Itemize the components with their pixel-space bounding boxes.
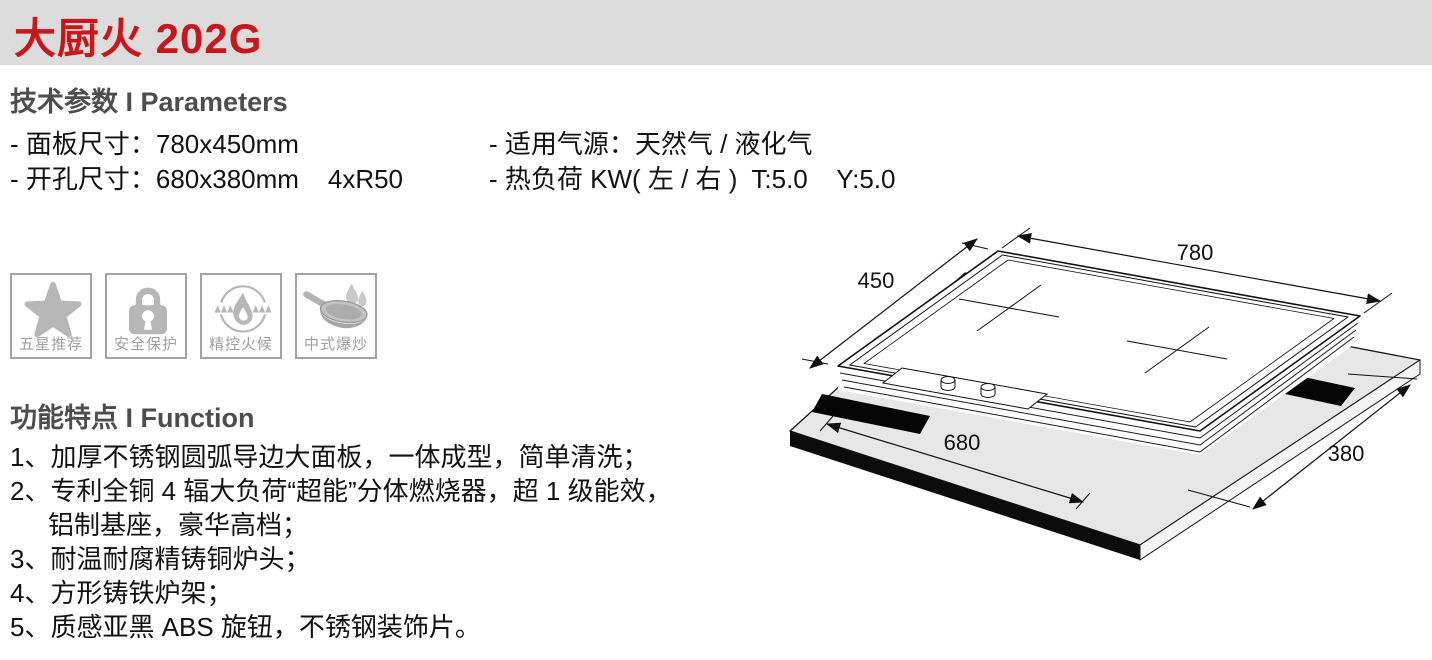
feature-five-star: 五星推荐 bbox=[10, 273, 92, 359]
function-item-1: 1、加厚不锈钢圆弧导边大面板，一体成型，简单清洗； bbox=[10, 440, 770, 474]
function-list: 1、加厚不锈钢圆弧导边大面板，一体成型，简单清洗； 2、专利全铜 4 辐大负荷“… bbox=[10, 440, 770, 644]
dim-label-380: 380 bbox=[1328, 441, 1365, 466]
feature-label: 精控火候 bbox=[202, 333, 280, 354]
function-item-2: 2、专利全铜 4 辐大负荷“超能”分体燃烧器，超 1 级能效， bbox=[10, 474, 770, 508]
star-icon bbox=[15, 277, 91, 339]
function-item-4: 4、方形铸铁炉架； bbox=[10, 576, 770, 610]
param-heat-load: - 热负荷 KW( 左 / 右 ) T:5.0 Y:5.0 bbox=[489, 159, 895, 196]
extension-line bbox=[802, 359, 828, 364]
parameters-heading: 技术参数 I Parameters bbox=[10, 80, 288, 119]
param-panel-size: - 面板尺寸：780x450mm bbox=[10, 124, 299, 161]
function-item-5: 5、质感亚黑 ABS 旋钮，不锈钢装饰片。 bbox=[10, 610, 770, 644]
lock-icon bbox=[110, 277, 186, 339]
function-item-3: 3、耐温耐腐精铸铜炉头； bbox=[10, 542, 770, 576]
function-item-2b: 铝制基座，豪华高档； bbox=[10, 508, 770, 542]
extension-line bbox=[1364, 293, 1392, 313]
param-gas-type: - 适用气源：天然气 / 液化气 bbox=[489, 124, 813, 161]
feature-flame-control: 精控火候 bbox=[200, 273, 282, 359]
param-cutout-size: - 开孔尺寸：680x380mm 4xR50 bbox=[10, 159, 403, 196]
feature-label: 中式爆炒 bbox=[297, 333, 375, 354]
function-heading: 功能特点 I Function bbox=[10, 396, 254, 435]
flame-control-icon bbox=[205, 277, 281, 339]
dim-label-780: 780 bbox=[1177, 240, 1214, 265]
dim-label-680: 680 bbox=[944, 430, 981, 455]
feature-wok: 中式爆炒 bbox=[295, 273, 377, 359]
feature-label: 安全保护 bbox=[107, 333, 185, 354]
dim-label-450: 450 bbox=[858, 268, 895, 293]
page-title: 大厨火 202G bbox=[14, 5, 262, 66]
feature-label: 五星推荐 bbox=[12, 333, 90, 354]
wok-icon bbox=[300, 277, 376, 339]
installation-diagram: 780 450 680 380 bbox=[780, 218, 1432, 660]
knob-left bbox=[941, 377, 955, 391]
knob-right bbox=[981, 384, 995, 398]
feature-safety: 安全保护 bbox=[105, 273, 187, 359]
